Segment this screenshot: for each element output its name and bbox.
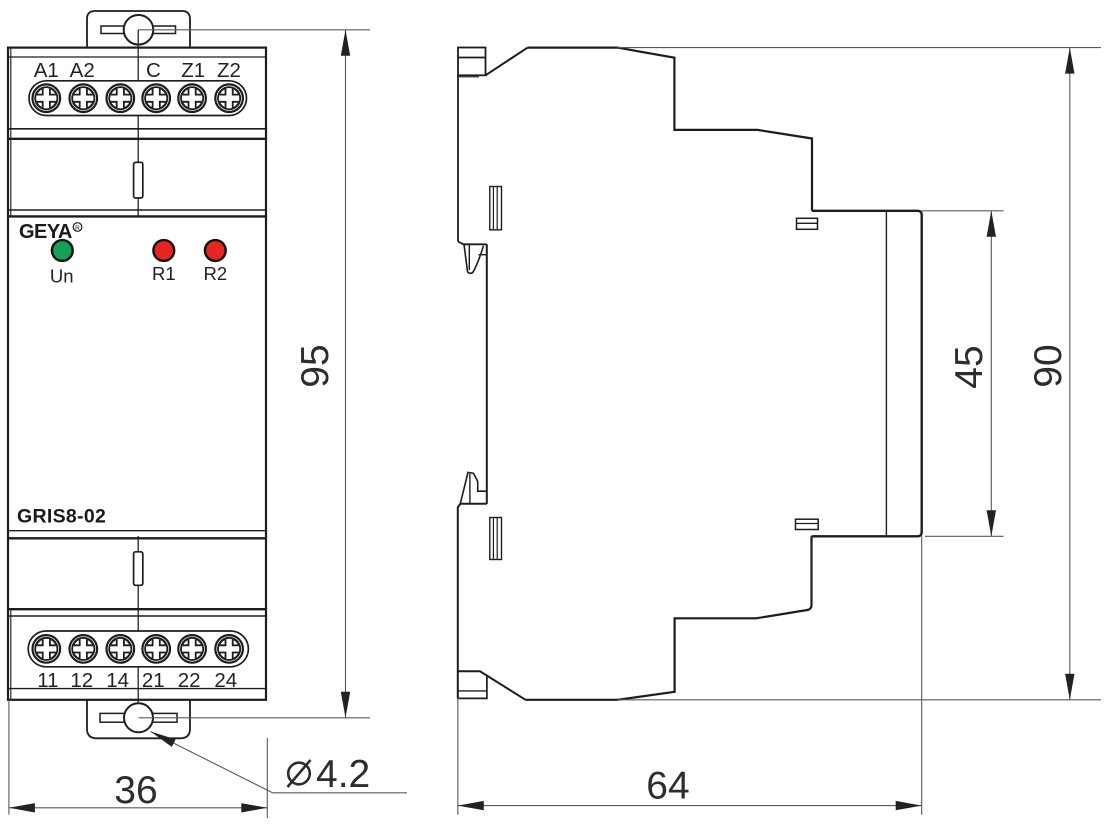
svg-text:95: 95 bbox=[294, 344, 337, 387]
svg-text:90: 90 bbox=[1027, 344, 1070, 387]
svg-text:11: 11 bbox=[37, 669, 58, 692]
svg-text:A1: A1 bbox=[34, 59, 59, 82]
svg-text:45: 45 bbox=[948, 345, 991, 388]
svg-text:64: 64 bbox=[646, 765, 689, 808]
svg-text:Z1: Z1 bbox=[181, 59, 205, 82]
svg-text:A2: A2 bbox=[70, 59, 95, 82]
svg-text:Z2: Z2 bbox=[217, 59, 241, 82]
svg-text:14: 14 bbox=[106, 669, 129, 692]
svg-text:36: 36 bbox=[114, 769, 157, 812]
svg-text:22: 22 bbox=[178, 669, 201, 692]
svg-text:Un: Un bbox=[50, 266, 74, 287]
svg-text:R: R bbox=[75, 225, 80, 232]
svg-text:R2: R2 bbox=[203, 263, 227, 284]
svg-text:12: 12 bbox=[70, 669, 93, 692]
svg-text:24: 24 bbox=[214, 669, 237, 692]
svg-text:C: C bbox=[146, 59, 161, 82]
svg-text:21: 21 bbox=[142, 669, 165, 692]
svg-text:GRIS8-02: GRIS8-02 bbox=[17, 506, 106, 528]
svg-text:R1: R1 bbox=[152, 263, 176, 284]
svg-text:4.2: 4.2 bbox=[316, 753, 370, 796]
